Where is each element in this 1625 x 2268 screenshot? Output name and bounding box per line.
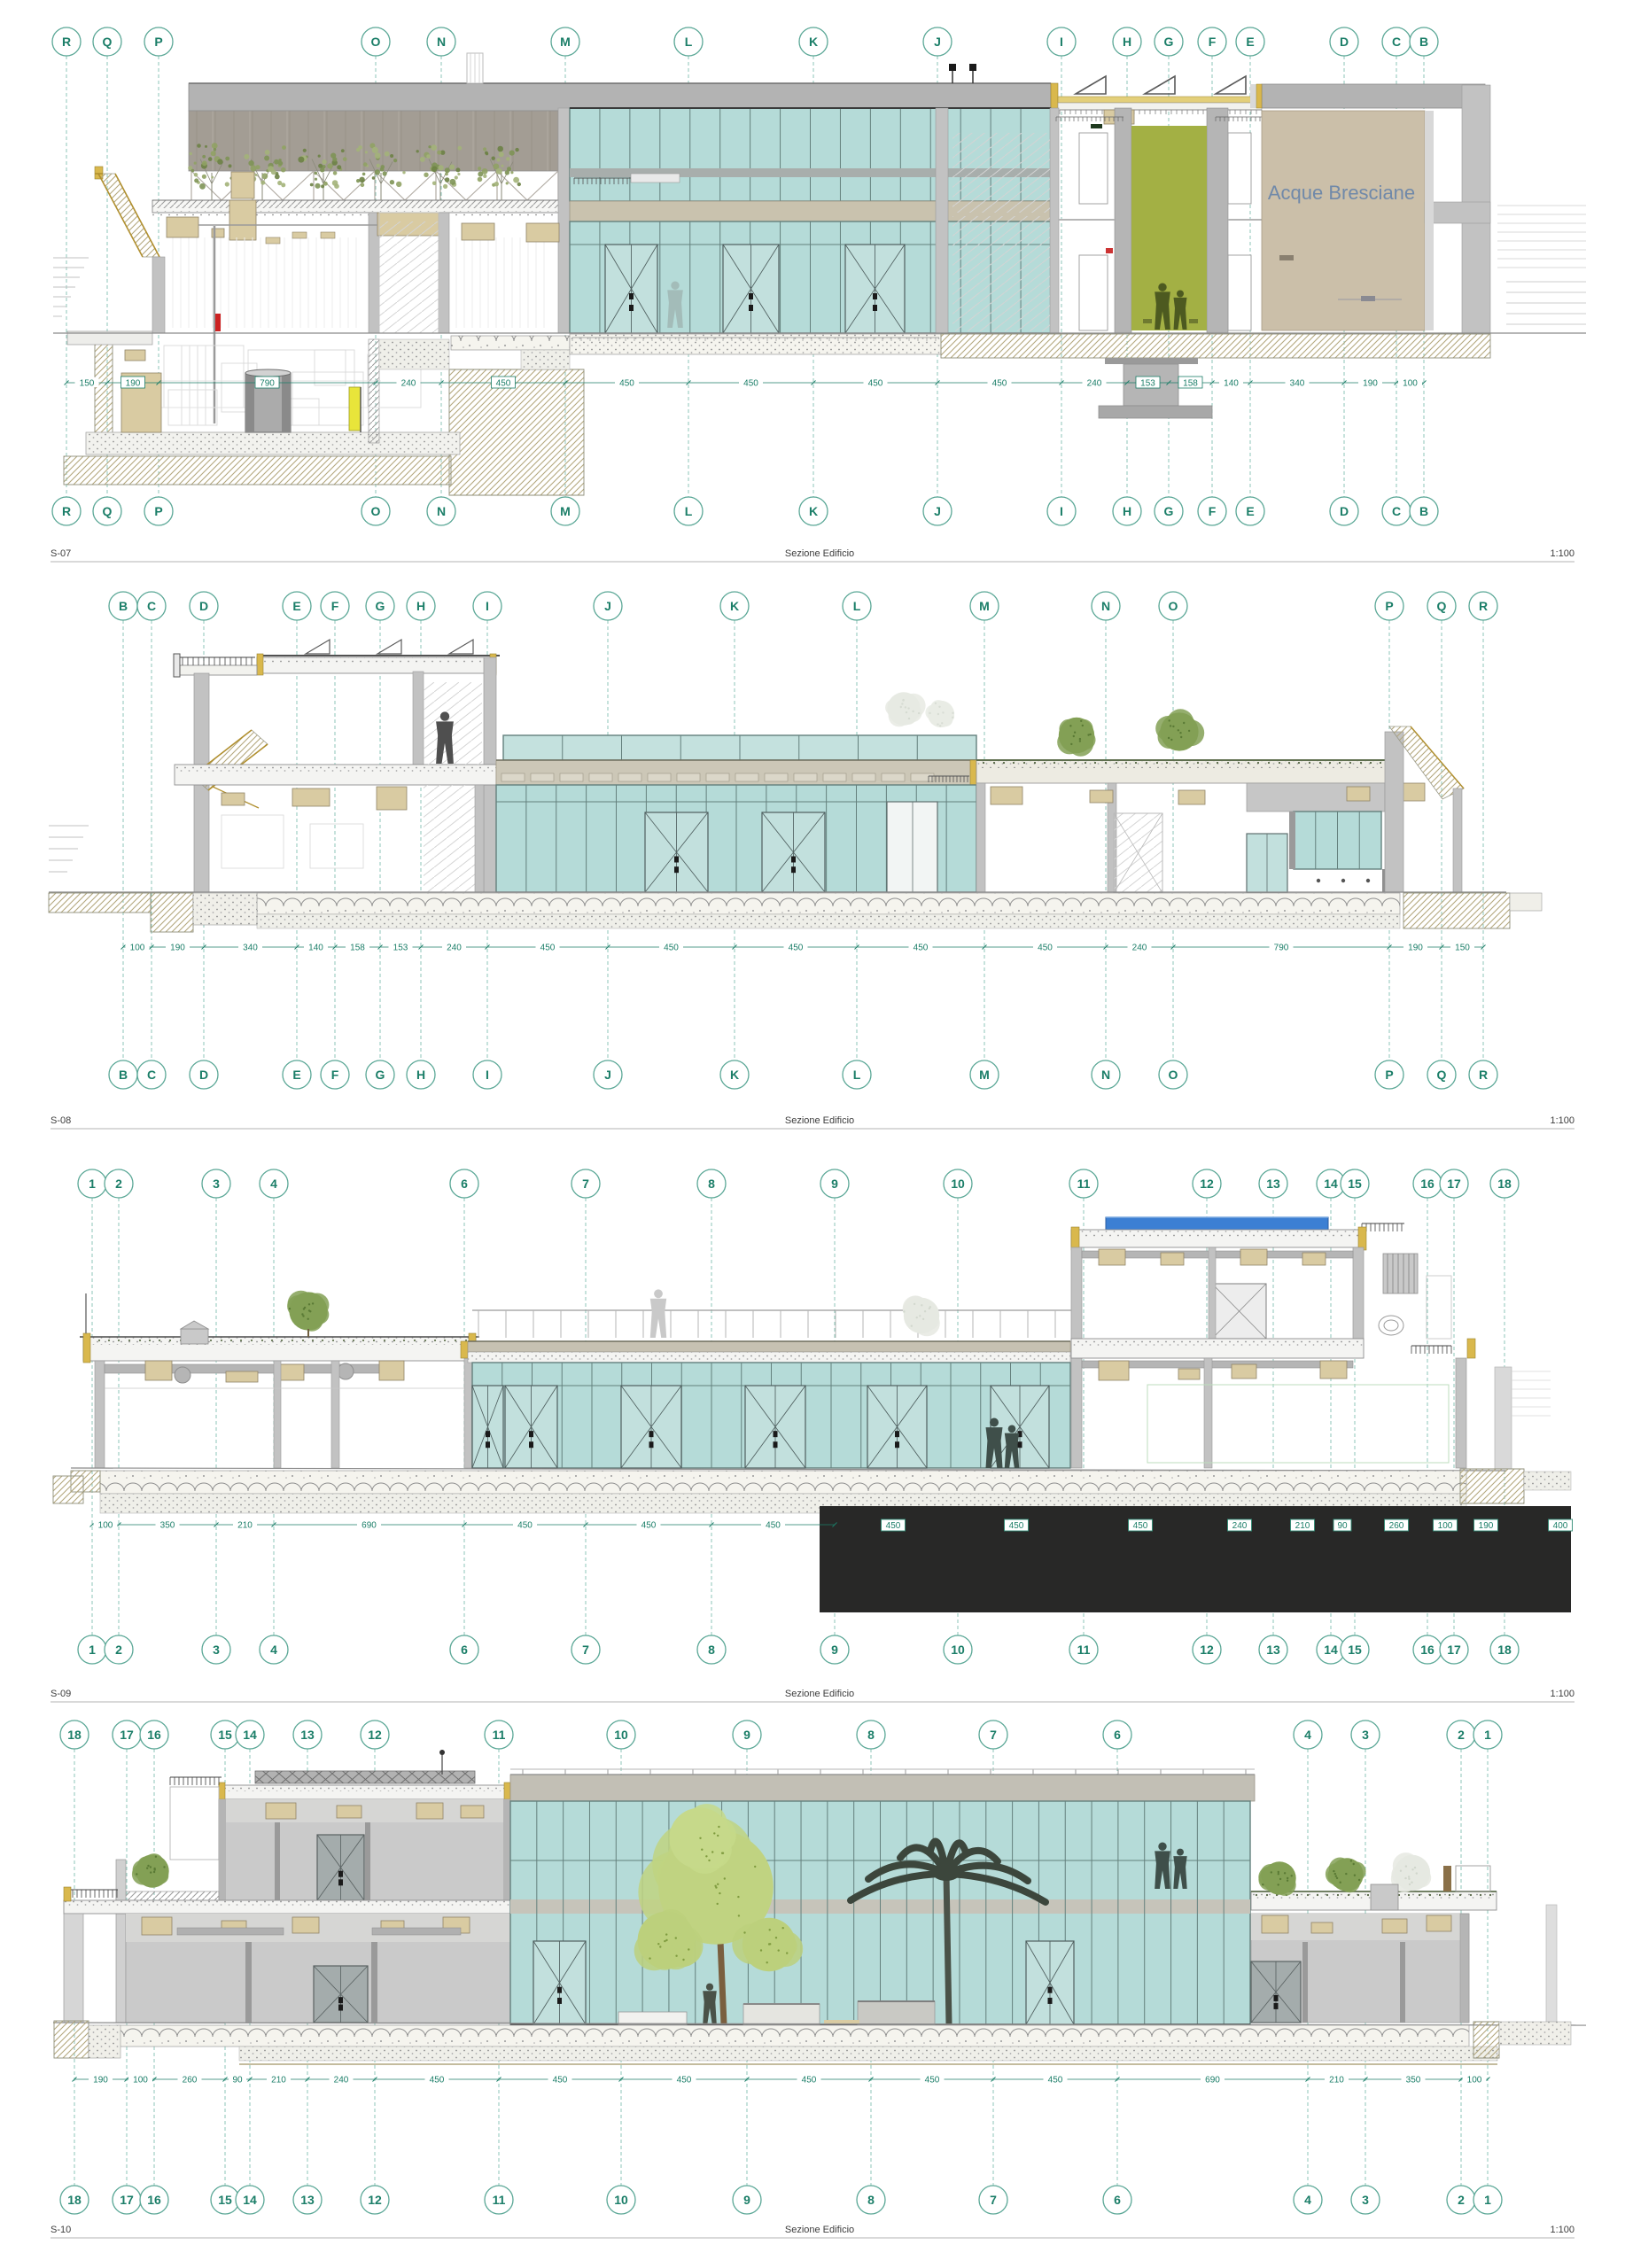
svg-text:8: 8 [867, 1728, 875, 1742]
svg-text:O: O [371, 504, 381, 518]
svg-text:18: 18 [67, 2193, 82, 2207]
svg-text:9: 9 [831, 1643, 838, 1657]
svg-text:R: R [1479, 1068, 1488, 1082]
svg-text:9: 9 [831, 1177, 838, 1191]
svg-text:2: 2 [115, 1177, 122, 1191]
svg-text:K: K [730, 1068, 739, 1082]
svg-text:400: 400 [1553, 1521, 1568, 1531]
svg-text:4: 4 [270, 1643, 277, 1657]
svg-text:G: G [376, 1068, 385, 1082]
svg-text:G: G [1164, 35, 1174, 49]
svg-text:16: 16 [1420, 1177, 1435, 1191]
svg-text:R: R [62, 35, 71, 49]
svg-text:240: 240 [447, 944, 462, 953]
svg-text:15: 15 [218, 2193, 232, 2207]
svg-text:E: E [1246, 504, 1254, 518]
svg-text:9: 9 [743, 1728, 750, 1742]
svg-text:450: 450 [992, 379, 1007, 389]
svg-text:10: 10 [951, 1177, 965, 1191]
svg-text:6: 6 [461, 1643, 468, 1657]
svg-text:153: 153 [1140, 379, 1155, 389]
svg-text:450: 450 [914, 944, 929, 953]
svg-text:F: F [331, 1068, 339, 1082]
svg-text:690: 690 [362, 1521, 377, 1531]
svg-text:140: 140 [1224, 379, 1239, 389]
svg-text:D: D [1340, 35, 1349, 49]
svg-text:6: 6 [1114, 2193, 1121, 2207]
svg-text:450: 450 [1133, 1521, 1148, 1531]
svg-text:340: 340 [243, 944, 258, 953]
svg-text:1:100: 1:100 [1550, 2225, 1574, 2235]
svg-text:2: 2 [1458, 2193, 1465, 2207]
svg-text:1: 1 [1484, 1728, 1491, 1742]
svg-text:J: J [604, 599, 611, 613]
svg-text:K: K [730, 599, 739, 613]
svg-text:J: J [934, 35, 941, 49]
svg-text:11: 11 [493, 1728, 506, 1742]
svg-text:450: 450 [677, 2076, 692, 2085]
svg-text:1:100: 1:100 [1550, 1689, 1574, 1699]
svg-text:P: P [1385, 1068, 1393, 1082]
svg-text:16: 16 [1420, 1643, 1435, 1657]
svg-text:6: 6 [461, 1177, 468, 1191]
svg-text:12: 12 [1200, 1643, 1214, 1657]
svg-text:190: 190 [1363, 379, 1378, 389]
svg-text:690: 690 [1205, 2076, 1220, 2085]
svg-text:B: B [119, 599, 128, 613]
svg-text:M: M [560, 504, 571, 518]
svg-text:240: 240 [401, 379, 416, 389]
svg-text:150: 150 [80, 379, 95, 389]
svg-text:O: O [371, 35, 381, 49]
svg-text:C: C [147, 1068, 156, 1082]
svg-text:240: 240 [1232, 1521, 1248, 1531]
svg-text:450: 450 [553, 2076, 568, 2085]
svg-text:I: I [1060, 504, 1063, 518]
svg-text:14: 14 [243, 1728, 257, 1742]
svg-text:4: 4 [1304, 1728, 1311, 1742]
svg-text:13: 13 [1266, 1177, 1280, 1191]
svg-text:3: 3 [213, 1177, 220, 1191]
svg-text:150: 150 [1455, 944, 1470, 953]
svg-text:M: M [979, 1068, 990, 1082]
svg-text:8: 8 [708, 1177, 715, 1191]
svg-text:340: 340 [1290, 379, 1305, 389]
svg-text:210: 210 [271, 2076, 286, 2085]
svg-text:10: 10 [951, 1643, 965, 1657]
svg-text:158: 158 [1183, 379, 1198, 389]
svg-text:L: L [853, 1068, 861, 1082]
svg-text:P: P [1385, 599, 1393, 613]
svg-text:790: 790 [260, 379, 275, 389]
svg-text:1: 1 [89, 1643, 96, 1657]
svg-text:14: 14 [243, 2193, 257, 2207]
svg-text:I: I [1060, 35, 1063, 49]
svg-text:100: 100 [130, 944, 145, 953]
svg-text:13: 13 [300, 2193, 315, 2207]
svg-text:N: N [437, 504, 446, 518]
svg-text:450: 450 [430, 2076, 445, 2085]
svg-text:H: H [1123, 35, 1131, 49]
svg-text:C: C [1392, 504, 1401, 518]
svg-text:9: 9 [743, 2193, 750, 2207]
svg-text:4: 4 [1304, 2193, 1311, 2207]
svg-text:Q: Q [103, 35, 113, 49]
svg-text:210: 210 [1329, 2076, 1344, 2085]
svg-text:D: D [1340, 504, 1349, 518]
svg-text:450: 450 [743, 379, 758, 389]
svg-text:15: 15 [218, 1728, 232, 1742]
svg-text:N: N [437, 35, 446, 49]
svg-text:18: 18 [1497, 1177, 1512, 1191]
svg-text:240: 240 [334, 2076, 349, 2085]
svg-text:N: N [1101, 1068, 1110, 1082]
svg-text:Q: Q [1437, 1068, 1447, 1082]
svg-text:3: 3 [213, 1643, 220, 1657]
svg-text:15: 15 [1348, 1643, 1362, 1657]
svg-text:12: 12 [368, 2193, 382, 2207]
svg-text:F: F [1209, 504, 1217, 518]
svg-text:G: G [1164, 504, 1174, 518]
svg-text:S-09: S-09 [51, 1689, 71, 1699]
svg-text:450: 450 [496, 379, 511, 389]
svg-text:100: 100 [98, 1521, 113, 1531]
svg-text:2: 2 [115, 1643, 122, 1657]
svg-text:450: 450 [1009, 1521, 1024, 1531]
svg-text:K: K [809, 504, 818, 518]
svg-text:7: 7 [990, 2193, 997, 2207]
svg-text:B: B [119, 1068, 128, 1082]
svg-text:16: 16 [147, 2193, 161, 2207]
svg-text:16: 16 [147, 1728, 161, 1742]
svg-text:P: P [154, 35, 162, 49]
svg-text:I: I [486, 1068, 489, 1082]
svg-text:I: I [486, 599, 489, 613]
svg-text:L: L [853, 599, 861, 613]
svg-text:190: 190 [93, 2076, 108, 2085]
svg-text:O: O [1169, 1068, 1178, 1082]
svg-text:J: J [604, 1068, 611, 1082]
svg-text:S-10: S-10 [51, 2225, 71, 2235]
svg-text:O: O [1169, 599, 1178, 613]
svg-text:450: 450 [619, 379, 634, 389]
svg-text:C: C [147, 599, 156, 613]
svg-text:450: 450 [1048, 2076, 1063, 2085]
svg-text:Sezione Edificio: Sezione Edificio [785, 548, 854, 559]
svg-text:450: 450 [789, 944, 804, 953]
svg-text:190: 190 [1479, 1521, 1494, 1531]
svg-text:140: 140 [308, 944, 323, 953]
svg-text:D: D [199, 599, 208, 613]
svg-text:F: F [1209, 35, 1217, 49]
svg-text:K: K [809, 35, 818, 49]
svg-text:450: 450 [540, 944, 556, 953]
svg-text:7: 7 [990, 1728, 997, 1742]
svg-text:7: 7 [582, 1177, 589, 1191]
svg-text:8: 8 [867, 2193, 875, 2207]
svg-text:14: 14 [1324, 1643, 1338, 1657]
svg-text:7: 7 [582, 1643, 589, 1657]
svg-text:Q: Q [1437, 599, 1447, 613]
svg-text:158: 158 [350, 944, 365, 953]
svg-text:6: 6 [1114, 1728, 1121, 1742]
svg-text:450: 450 [664, 944, 679, 953]
svg-text:17: 17 [120, 2193, 134, 2207]
svg-text:1: 1 [89, 1177, 96, 1191]
svg-text:11: 11 [493, 2193, 506, 2207]
svg-text:M: M [560, 35, 571, 49]
svg-text:90: 90 [1337, 1521, 1348, 1531]
svg-text:190: 190 [170, 944, 185, 953]
svg-text:L: L [685, 504, 693, 518]
svg-text:100: 100 [1467, 2076, 1482, 2085]
svg-text:240: 240 [1087, 379, 1102, 389]
svg-text:Sezione Edificio: Sezione Edificio [785, 2225, 854, 2235]
svg-text:12: 12 [1200, 1177, 1214, 1191]
svg-text:17: 17 [1447, 1177, 1461, 1191]
svg-text:L: L [685, 35, 693, 49]
svg-text:350: 350 [1406, 2076, 1421, 2085]
svg-text:N: N [1101, 599, 1110, 613]
svg-text:240: 240 [1132, 944, 1147, 953]
svg-text:1:100: 1:100 [1550, 548, 1574, 559]
svg-text:D: D [199, 1068, 208, 1082]
svg-text:S-07: S-07 [51, 548, 71, 559]
svg-text:M: M [979, 599, 990, 613]
svg-text:450: 450 [886, 1521, 901, 1531]
svg-text:3: 3 [1362, 2193, 1369, 2207]
svg-text:100: 100 [1403, 379, 1418, 389]
svg-text:G: G [376, 599, 385, 613]
svg-text:13: 13 [1266, 1643, 1280, 1657]
svg-text:260: 260 [183, 2076, 198, 2085]
svg-text:H: H [416, 1068, 425, 1082]
svg-text:F: F [331, 599, 339, 613]
svg-text:2: 2 [1458, 1728, 1465, 1742]
svg-text:E: E [292, 599, 300, 613]
svg-text:E: E [1246, 35, 1254, 49]
svg-text:1: 1 [1484, 2193, 1491, 2207]
svg-text:450: 450 [925, 2076, 940, 2085]
svg-text:790: 790 [1274, 944, 1289, 953]
svg-text:S-08: S-08 [51, 1115, 71, 1126]
svg-text:450: 450 [766, 1521, 781, 1531]
svg-text:350: 350 [160, 1521, 175, 1531]
svg-text:4: 4 [270, 1177, 277, 1191]
svg-text:H: H [1123, 504, 1131, 518]
svg-text:11: 11 [1077, 1177, 1091, 1191]
svg-text:11: 11 [1077, 1643, 1091, 1657]
svg-text:190: 190 [1408, 944, 1423, 953]
svg-text:E: E [292, 1068, 300, 1082]
svg-text:Q: Q [103, 504, 113, 518]
svg-text:100: 100 [133, 2076, 148, 2085]
svg-text:190: 190 [126, 379, 141, 389]
svg-text:450: 450 [1038, 944, 1053, 953]
svg-text:450: 450 [802, 2076, 817, 2085]
svg-text:R: R [1479, 599, 1488, 613]
svg-text:90: 90 [232, 2076, 243, 2085]
svg-text:B: B [1419, 504, 1428, 518]
svg-text:12: 12 [368, 1728, 382, 1742]
svg-text:15: 15 [1348, 1177, 1362, 1191]
svg-text:210: 210 [237, 1521, 253, 1531]
svg-text:14: 14 [1324, 1177, 1338, 1191]
svg-text:B: B [1419, 35, 1428, 49]
svg-text:10: 10 [614, 1728, 628, 1742]
svg-text:17: 17 [120, 1728, 134, 1742]
svg-text:R: R [62, 504, 71, 518]
svg-text:100: 100 [1438, 1521, 1453, 1531]
svg-text:17: 17 [1447, 1643, 1461, 1657]
svg-text:C: C [1392, 35, 1401, 49]
svg-text:450: 450 [517, 1521, 533, 1531]
svg-text:450: 450 [641, 1521, 657, 1531]
svg-text:P: P [154, 504, 162, 518]
svg-text:Sezione Edificio: Sezione Edificio [785, 1115, 854, 1126]
svg-text:18: 18 [1497, 1643, 1512, 1657]
svg-text:260: 260 [1389, 1521, 1404, 1531]
svg-text:J: J [934, 504, 941, 518]
svg-text:10: 10 [614, 2193, 628, 2207]
svg-text:210: 210 [1295, 1521, 1310, 1531]
svg-text:3: 3 [1362, 1728, 1369, 1742]
svg-text:Sezione Edificio: Sezione Edificio [785, 1689, 854, 1699]
svg-text:450: 450 [868, 379, 883, 389]
svg-text:1:100: 1:100 [1550, 1115, 1574, 1126]
svg-text:153: 153 [393, 944, 408, 953]
svg-text:Acque Bresciane: Acque Bresciane [1268, 182, 1415, 204]
svg-text:H: H [416, 599, 425, 613]
svg-text:18: 18 [67, 1728, 82, 1742]
svg-text:8: 8 [708, 1643, 715, 1657]
svg-text:13: 13 [300, 1728, 315, 1742]
